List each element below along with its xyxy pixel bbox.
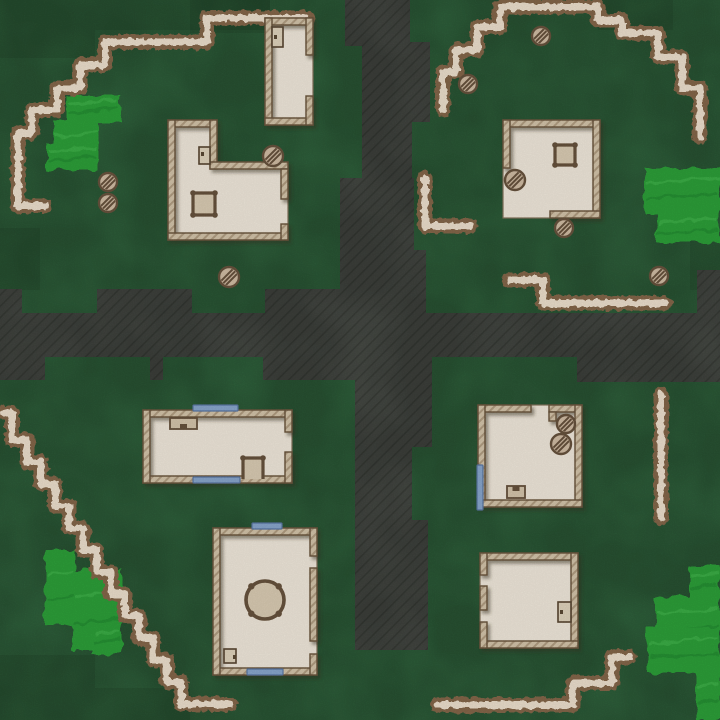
grain-overlay-2 bbox=[0, 0, 720, 720]
game-map-canvas[interactable] bbox=[0, 0, 720, 720]
game-viewport[interactable] bbox=[0, 0, 720, 720]
